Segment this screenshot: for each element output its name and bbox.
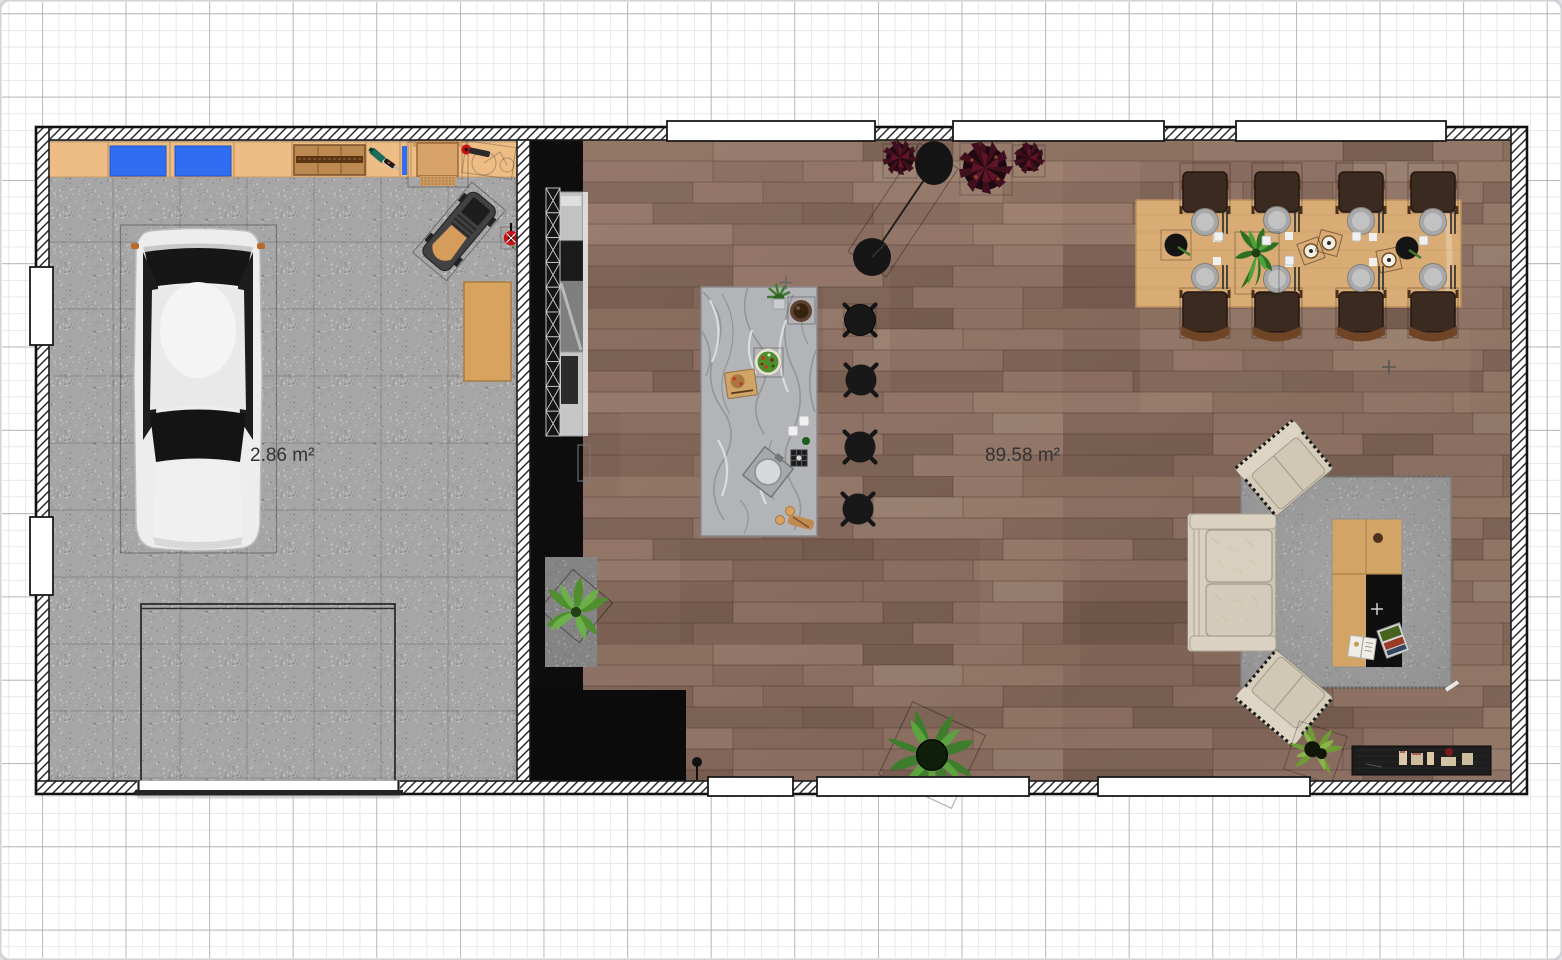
svg-text:2.86 m²: 2.86 m²	[250, 445, 314, 466]
svg-text:89.58 m²: 89.58 m²	[985, 445, 1060, 466]
